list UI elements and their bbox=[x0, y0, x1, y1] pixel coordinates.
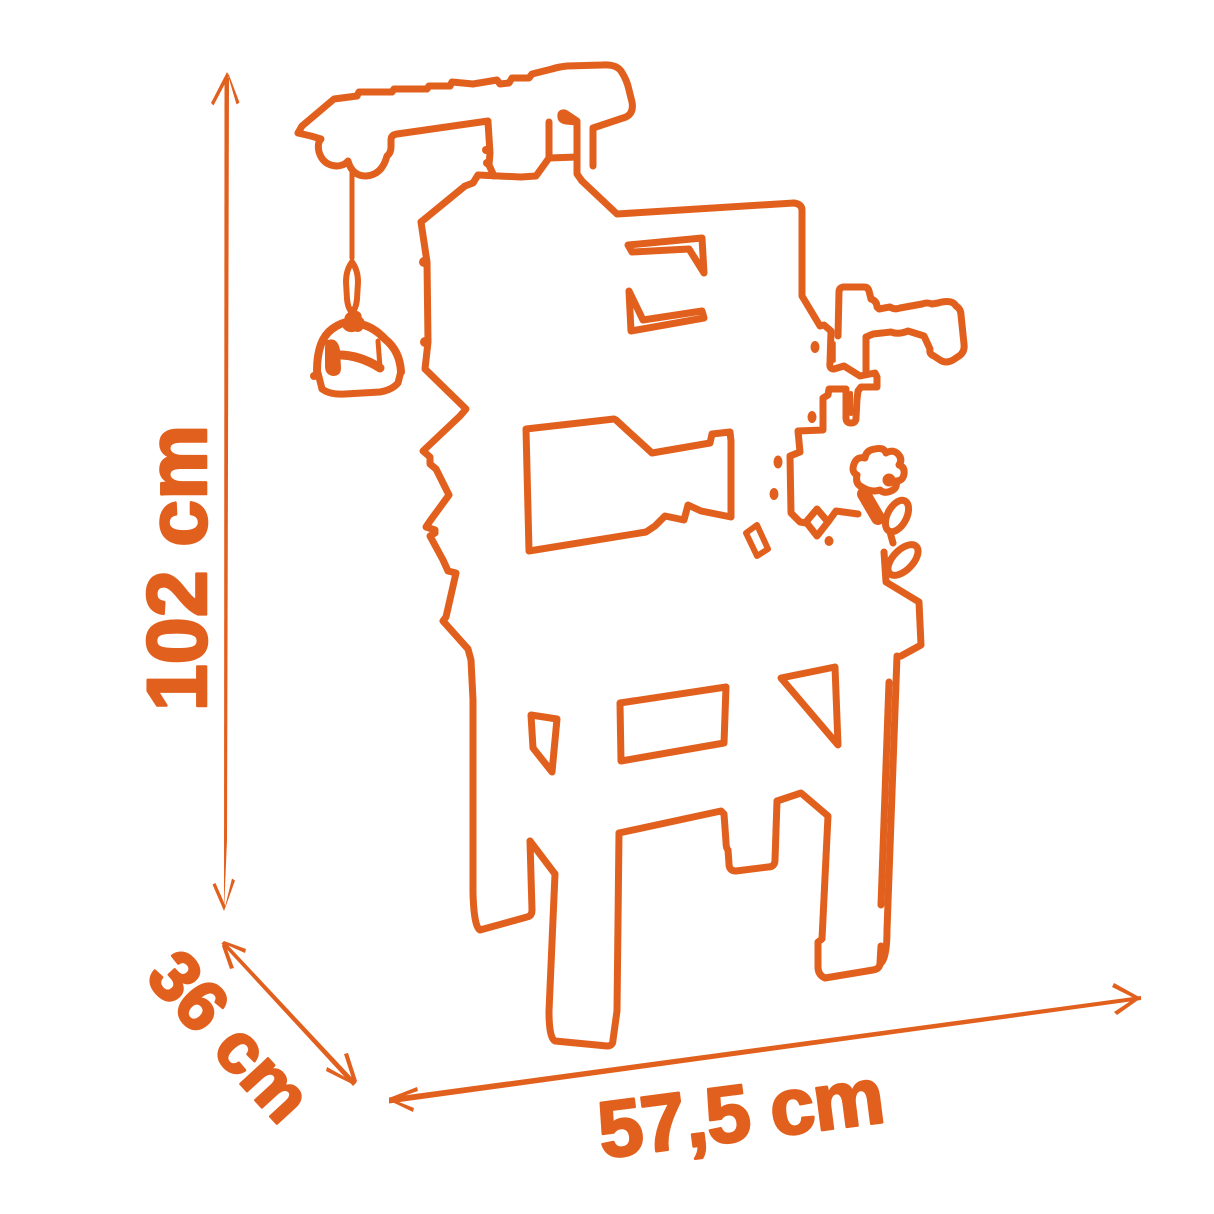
svg-text:102 cm: 102 cm bbox=[130, 425, 224, 712]
